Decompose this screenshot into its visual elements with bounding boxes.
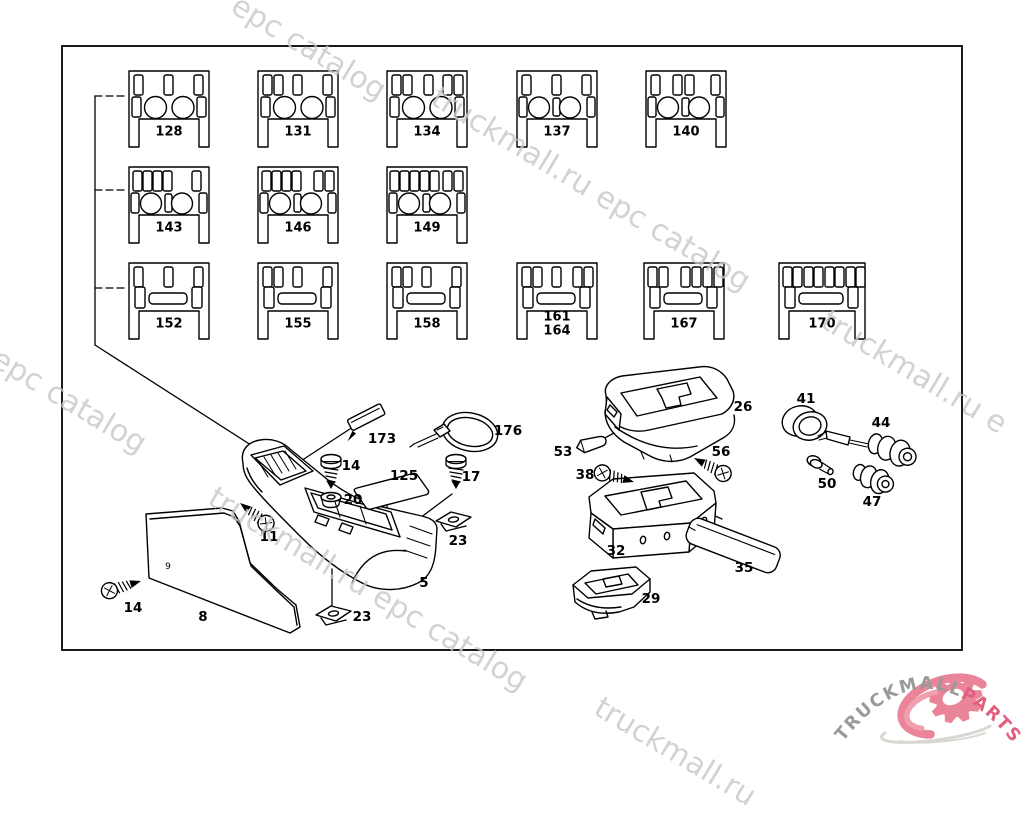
brand-logo-canvas: TRUCKMALLPARTS bbox=[0, 0, 1024, 750]
truckmall-logo: TRUCKMALLPARTS bbox=[831, 671, 1024, 748]
parts-diagram-image: 1281311341371401431461491521551581611641… bbox=[0, 0, 1024, 750]
logo-swoosh-gray bbox=[881, 726, 990, 742]
